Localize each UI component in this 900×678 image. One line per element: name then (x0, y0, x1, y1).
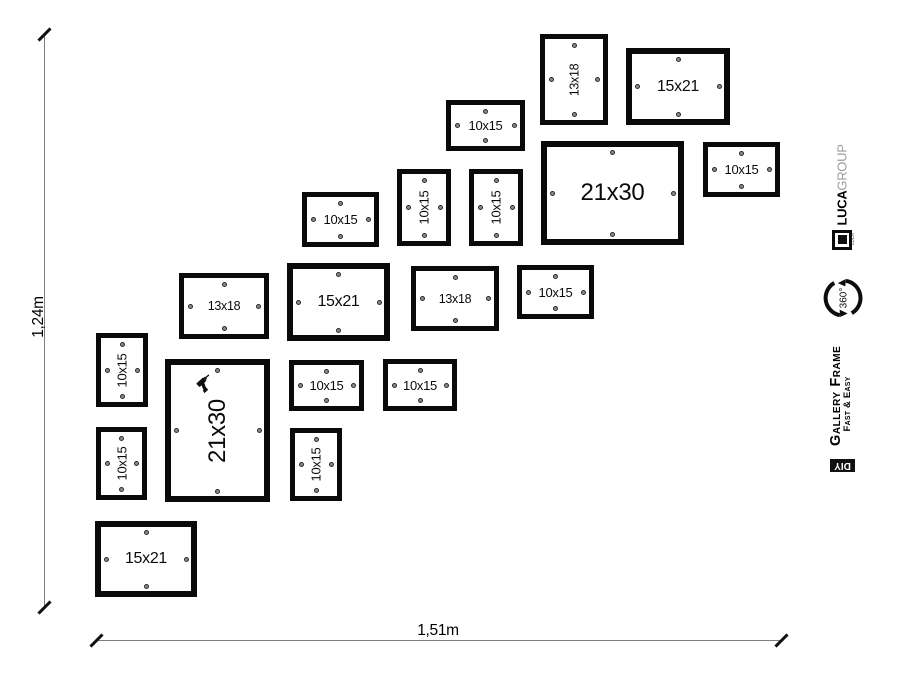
svg-text:360°: 360° (839, 287, 850, 308)
